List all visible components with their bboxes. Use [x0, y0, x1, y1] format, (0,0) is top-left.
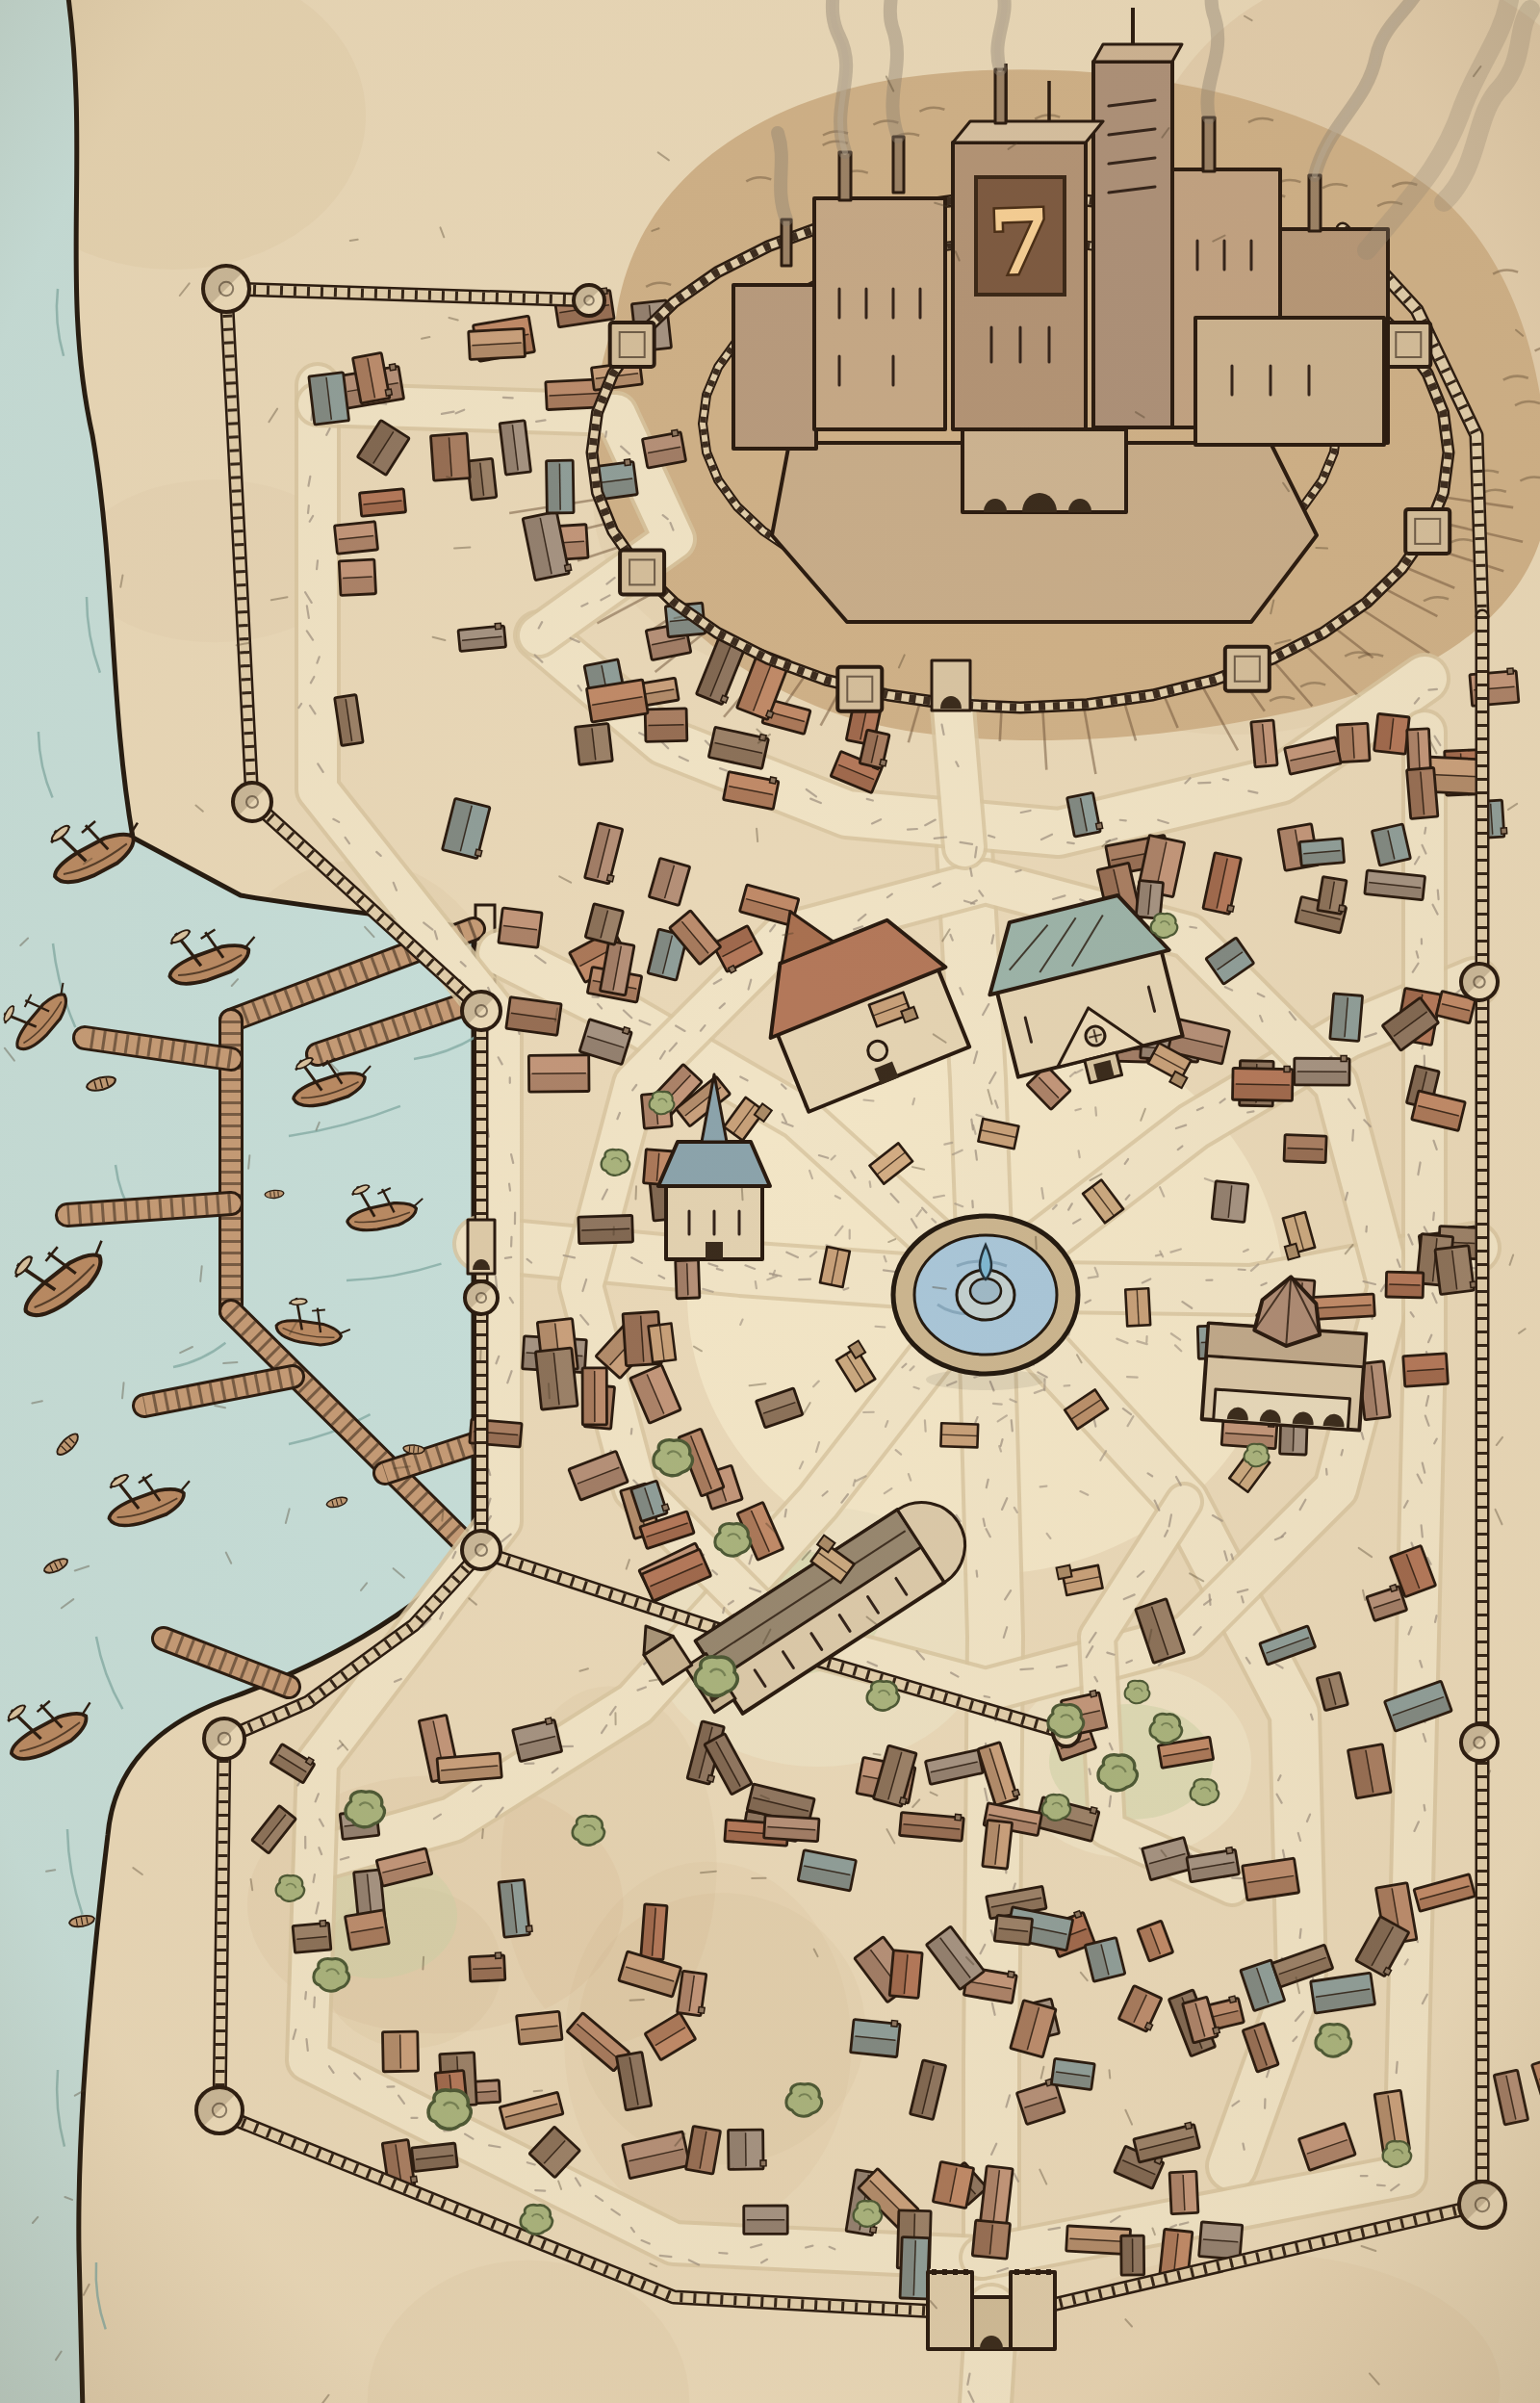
chimney [662, 1504, 670, 1512]
house [1386, 1272, 1424, 1298]
pen-mark [757, 829, 757, 841]
pen-mark [874, 1754, 881, 1755]
roof-shade [582, 1368, 595, 1425]
decorative-mark [536, 420, 545, 421]
decorative-mark [503, 398, 513, 399]
house [582, 1368, 606, 1425]
decorative-mark [1020, 1668, 1033, 1669]
decorative-mark [908, 829, 917, 830]
decorative-mark [1231, 1554, 1233, 1559]
decorative-mark [1433, 1213, 1434, 1221]
chimney [770, 777, 777, 784]
chimney [672, 429, 679, 436]
decorative-mark [1247, 1111, 1253, 1112]
house [517, 2011, 563, 2044]
chimney [546, 1718, 552, 1724]
front-annex [1195, 318, 1384, 445]
tree [715, 1523, 751, 1556]
decorative-mark [489, 1469, 491, 1475]
house [1251, 720, 1277, 767]
chimney [1008, 1971, 1014, 1977]
decorative-mark [317, 560, 318, 569]
tree [1125, 1681, 1150, 1704]
ring-tower [837, 667, 882, 711]
wall-segment [219, 1739, 224, 2113]
decorative-mark [1438, 891, 1439, 900]
ring-tower [1386, 323, 1430, 367]
ring-tower [610, 323, 654, 367]
pier-planks [67, 1203, 231, 1215]
roof-ridge [649, 725, 684, 726]
chimney [1501, 828, 1506, 834]
house [1374, 713, 1410, 754]
tree [521, 2205, 552, 2234]
house [339, 559, 375, 595]
tree [1316, 2024, 1351, 2056]
chimney [760, 2160, 766, 2166]
chimney [623, 1027, 630, 1035]
decorative-mark [1079, 1150, 1080, 1157]
house [972, 2220, 1010, 2259]
decorative-mark [1435, 1615, 1436, 1622]
citadel-sign-digit: 7 [988, 190, 1053, 296]
house [412, 2143, 458, 2171]
house [359, 489, 405, 517]
chimney [1507, 668, 1513, 674]
chimney [1229, 1996, 1236, 2002]
pen-mark [442, 1512, 443, 1521]
furnace-hall-west [814, 198, 945, 429]
decorative-mark [306, 2039, 307, 2051]
house [506, 997, 561, 1036]
decorative-mark [912, 1098, 914, 1104]
chimney [1013, 1790, 1020, 1797]
stall-crate [1057, 1565, 1072, 1580]
house [677, 1971, 708, 2016]
house [983, 1820, 1013, 1869]
decorative-mark [1156, 1254, 1161, 1255]
decorative-mark [660, 2256, 672, 2257]
chimney [1226, 1847, 1233, 1854]
house [994, 1915, 1032, 1945]
decorative-mark [1090, 1769, 1091, 1773]
roof-shade [1232, 1084, 1292, 1100]
decorative-mark [864, 1100, 874, 1101]
chimney [1096, 822, 1103, 829]
roof-ridge [1236, 1084, 1290, 1085]
decorative-mark [509, 1184, 510, 1191]
roof-shade [1386, 1284, 1424, 1298]
decorative-mark [535, 2190, 545, 2191]
roof-shade [529, 1073, 589, 1092]
house [1295, 1055, 1349, 1085]
chimney [320, 1921, 326, 1927]
chimney [1339, 905, 1346, 912]
decorative-mark [1075, 1109, 1080, 1110]
decorative-mark [1120, 820, 1126, 821]
house [1212, 1181, 1248, 1223]
house [468, 458, 497, 500]
chimney [1390, 1585, 1398, 1592]
house [641, 1904, 667, 1960]
decorative-mark [985, 1696, 989, 1697]
house [1051, 2058, 1094, 2089]
decorative-mark [1223, 779, 1228, 780]
house [547, 460, 575, 513]
house [1311, 1973, 1375, 2013]
house [1435, 1245, 1476, 1294]
chimney [625, 459, 631, 466]
decorative-mark [1428, 689, 1436, 690]
decorative-mark [975, 847, 977, 858]
house [900, 2237, 930, 2299]
roof-ridge [400, 2034, 401, 2068]
house [528, 1055, 589, 1092]
house [1365, 870, 1425, 900]
ring-tower [1405, 509, 1450, 554]
decorative-mark [799, 1279, 810, 1280]
decorative-mark [854, 1480, 856, 1486]
house [764, 1816, 819, 1842]
house [1318, 877, 1349, 915]
house [1313, 1294, 1374, 1319]
city-map: 7 [0, 0, 1540, 2403]
house [430, 433, 470, 480]
decorative-mark [1127, 1377, 1138, 1378]
pen-mark [1316, 548, 1327, 549]
decorative-mark [1243, 2144, 1244, 2150]
chimney [565, 564, 572, 571]
tree [314, 1958, 349, 1991]
house [535, 1348, 577, 1409]
pen-mark [454, 548, 470, 549]
decorative-mark [1110, 1796, 1111, 1807]
chimney [766, 711, 774, 718]
decorative-mark [1352, 1130, 1353, 1141]
tree [276, 1875, 304, 1901]
chimney [390, 364, 397, 371]
decorative-mark [1326, 1469, 1327, 1475]
decorative-mark [876, 1327, 885, 1328]
tree [602, 1150, 629, 1176]
house [1169, 2171, 1198, 2213]
tree [1151, 914, 1178, 938]
house [586, 680, 648, 722]
chimney [1213, 2027, 1219, 2033]
house [1330, 994, 1363, 1042]
decorative-mark [496, 1277, 497, 1289]
house [575, 723, 612, 764]
decorative-mark [605, 431, 606, 436]
market-stall [940, 1423, 978, 1447]
decorative-mark [1422, 1525, 1423, 1537]
tree [1191, 1779, 1219, 1805]
pen-mark [636, 1186, 637, 1199]
city-map-page: 7 [0, 0, 1540, 2403]
house [1372, 824, 1410, 866]
house [685, 2126, 720, 2174]
tree [650, 1092, 675, 1115]
tree [346, 1792, 384, 1827]
tree [1098, 1755, 1137, 1791]
chimney [721, 695, 729, 703]
house [500, 421, 531, 476]
chimney [698, 2007, 705, 2014]
decorative-mark [314, 1998, 315, 2007]
chimney [1185, 2122, 1192, 2129]
roof-shade [340, 577, 375, 596]
house [293, 1920, 331, 1952]
house [1232, 1065, 1293, 1100]
chimney [495, 1952, 500, 1958]
house [645, 709, 687, 741]
roof-shade [382, 2031, 400, 2071]
chimney [1341, 1055, 1347, 1061]
house [1121, 2235, 1144, 2275]
house [1243, 1858, 1299, 1900]
decorative-mark [1377, 2185, 1385, 2186]
roof-shade [547, 460, 561, 513]
roof-shade [744, 2220, 787, 2235]
pen-mark [46, 1870, 55, 1871]
house [345, 1910, 389, 1951]
pen-mark [534, 2090, 543, 2091]
ring-tower [1225, 647, 1270, 691]
chimney [607, 875, 614, 882]
house [334, 522, 377, 555]
decorative-mark [884, 1270, 895, 1272]
pen-mark [1036, 1237, 1037, 1250]
house [889, 1951, 922, 1999]
pen-mark [350, 240, 358, 241]
decorative-mark [305, 1992, 306, 1999]
decorative-mark [505, 1257, 511, 1258]
pen-mark [742, 1188, 743, 1200]
decorative-mark [970, 868, 971, 876]
decorative-mark [925, 1420, 926, 1431]
chimney [955, 1814, 962, 1821]
pen-mark [480, 1349, 481, 1360]
tree [854, 2201, 882, 2227]
tree [1042, 1795, 1070, 1821]
house [1403, 1354, 1449, 1386]
chimney [880, 760, 886, 766]
decorative-mark [1342, 1450, 1343, 1455]
decorative-mark [631, 1429, 632, 1434]
chimney [1090, 1691, 1096, 1697]
decorative-mark [935, 838, 946, 839]
house [676, 1260, 700, 1299]
chimney [1284, 1066, 1290, 1072]
roof-shade [1284, 1148, 1326, 1162]
decorative-mark [756, 1281, 757, 1288]
tree [654, 1440, 692, 1476]
house [469, 328, 526, 359]
tree [428, 2090, 471, 2129]
pen-mark [482, 1829, 483, 1838]
tree [1048, 1704, 1084, 1737]
chimney [495, 623, 501, 630]
roof-ridge [559, 463, 560, 509]
roof-shade [1295, 1072, 1349, 1085]
decorative-mark [867, 799, 873, 801]
decorative-mark [976, 1150, 977, 1160]
decorative-mark [1397, 2062, 1398, 2073]
decorative-mark [723, 1608, 724, 1613]
tall-tower [1093, 62, 1172, 427]
cliff-hatch [1000, 711, 1002, 741]
decorative-mark [977, 1571, 978, 1577]
tree [573, 1816, 604, 1845]
house [1347, 1744, 1391, 1798]
roof-shade [1121, 2235, 1133, 2275]
pen-mark [630, 2000, 644, 2001]
decorative-mark [1424, 828, 1425, 834]
road [953, 708, 964, 847]
tree [1383, 2141, 1411, 2167]
tree [786, 2083, 822, 2116]
house [1406, 767, 1437, 818]
decorative-mark [308, 505, 309, 513]
house [1284, 1135, 1326, 1163]
decorative-mark [1424, 1805, 1425, 1811]
harbor-gate [468, 1220, 495, 1274]
tree [867, 1681, 899, 1710]
house [499, 908, 542, 947]
house [469, 1952, 504, 1981]
decorative-mark [719, 2253, 727, 2254]
house [309, 373, 349, 425]
roof-shade [728, 2130, 746, 2169]
chimney [1074, 1911, 1082, 1919]
decorative-mark [993, 1404, 1002, 1405]
decorative-mark [1040, 1486, 1047, 1487]
tree [695, 1657, 737, 1695]
market-stall [649, 1324, 676, 1363]
chimney [1227, 905, 1234, 912]
ring-tower [620, 550, 664, 594]
decorative-mark [1239, 1270, 1245, 1271]
chimney [475, 849, 482, 856]
decorative-mark [1095, 1107, 1096, 1115]
chimney [385, 389, 392, 396]
decorative-mark [1190, 927, 1195, 928]
house [744, 2206, 788, 2234]
roof-shade [676, 1260, 688, 1299]
house [1337, 723, 1370, 762]
stall-crate [1285, 1244, 1299, 1260]
tree [1245, 1444, 1270, 1467]
decorative-mark [1067, 842, 1074, 843]
chimney [526, 1925, 533, 1932]
decorative-mark [785, 1510, 786, 1516]
decorative-mark [1014, 1884, 1015, 1889]
pen-mark [423, 1957, 423, 1970]
decorative-mark [314, 1874, 315, 1882]
house [585, 904, 623, 945]
house [933, 2161, 973, 2208]
chimney [891, 2021, 898, 2028]
chimney [1091, 1807, 1097, 1814]
decorative-mark [1300, 1929, 1301, 1938]
pen-mark [1109, 2070, 1110, 2078]
pen-mark [248, 1155, 249, 1169]
decorative-mark [870, 1181, 871, 1187]
chimney [1145, 2023, 1153, 2030]
chimney [900, 1797, 907, 1804]
house [728, 2130, 766, 2169]
house [851, 2017, 901, 2057]
citadel-gate [932, 660, 970, 711]
roof-shade [646, 725, 687, 742]
house [437, 1753, 501, 1783]
roof-ridge [1389, 1284, 1420, 1285]
house [1299, 839, 1344, 866]
house [382, 2031, 418, 2072]
furnace-block-west [733, 285, 816, 449]
chimney [707, 1775, 714, 1782]
chimney [411, 2176, 418, 2183]
house [578, 1215, 633, 1243]
house [1199, 2222, 1243, 2260]
roof-shade [578, 1228, 632, 1244]
decorative-mark [984, 1519, 986, 1526]
tree [1150, 1714, 1182, 1743]
market-stall [1125, 1288, 1150, 1326]
decorative-mark [1015, 870, 1020, 871]
decorative-mark [1089, 1277, 1098, 1278]
pen-mark [549, 1383, 550, 1398]
decorative-mark [1012, 1420, 1013, 1431]
house [1085, 1938, 1125, 1982]
pen-mark [223, 1362, 237, 1363]
